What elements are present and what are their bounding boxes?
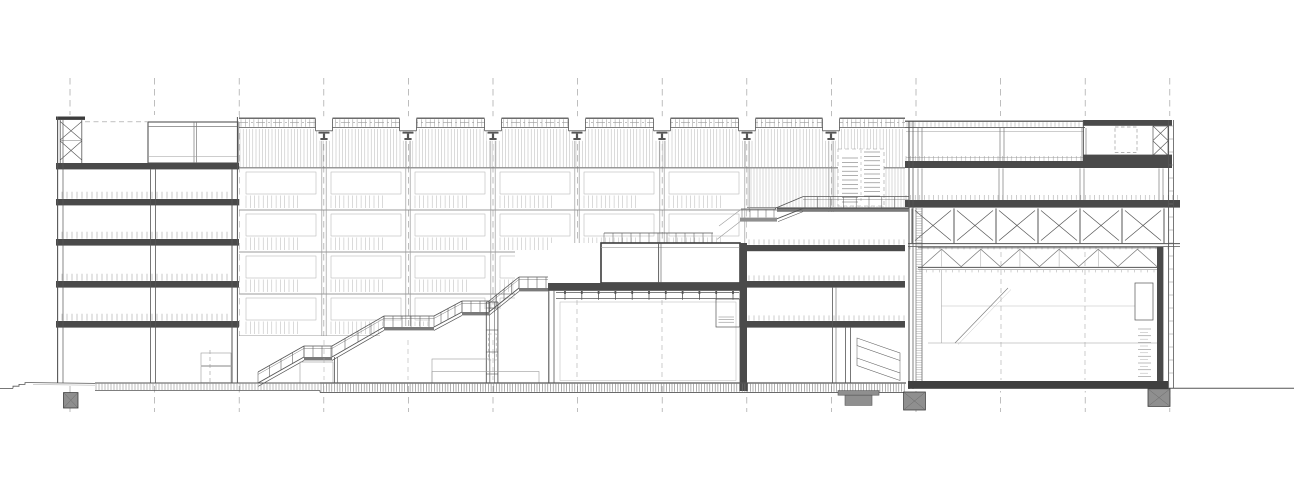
left-tower xyxy=(56,115,239,383)
stair-core xyxy=(747,212,916,383)
central-theater xyxy=(548,233,748,391)
building-section-drawing xyxy=(0,0,1294,484)
right-hall xyxy=(905,116,1181,391)
architectural-section-figure xyxy=(0,0,1294,484)
foyer-terraces xyxy=(239,251,602,386)
